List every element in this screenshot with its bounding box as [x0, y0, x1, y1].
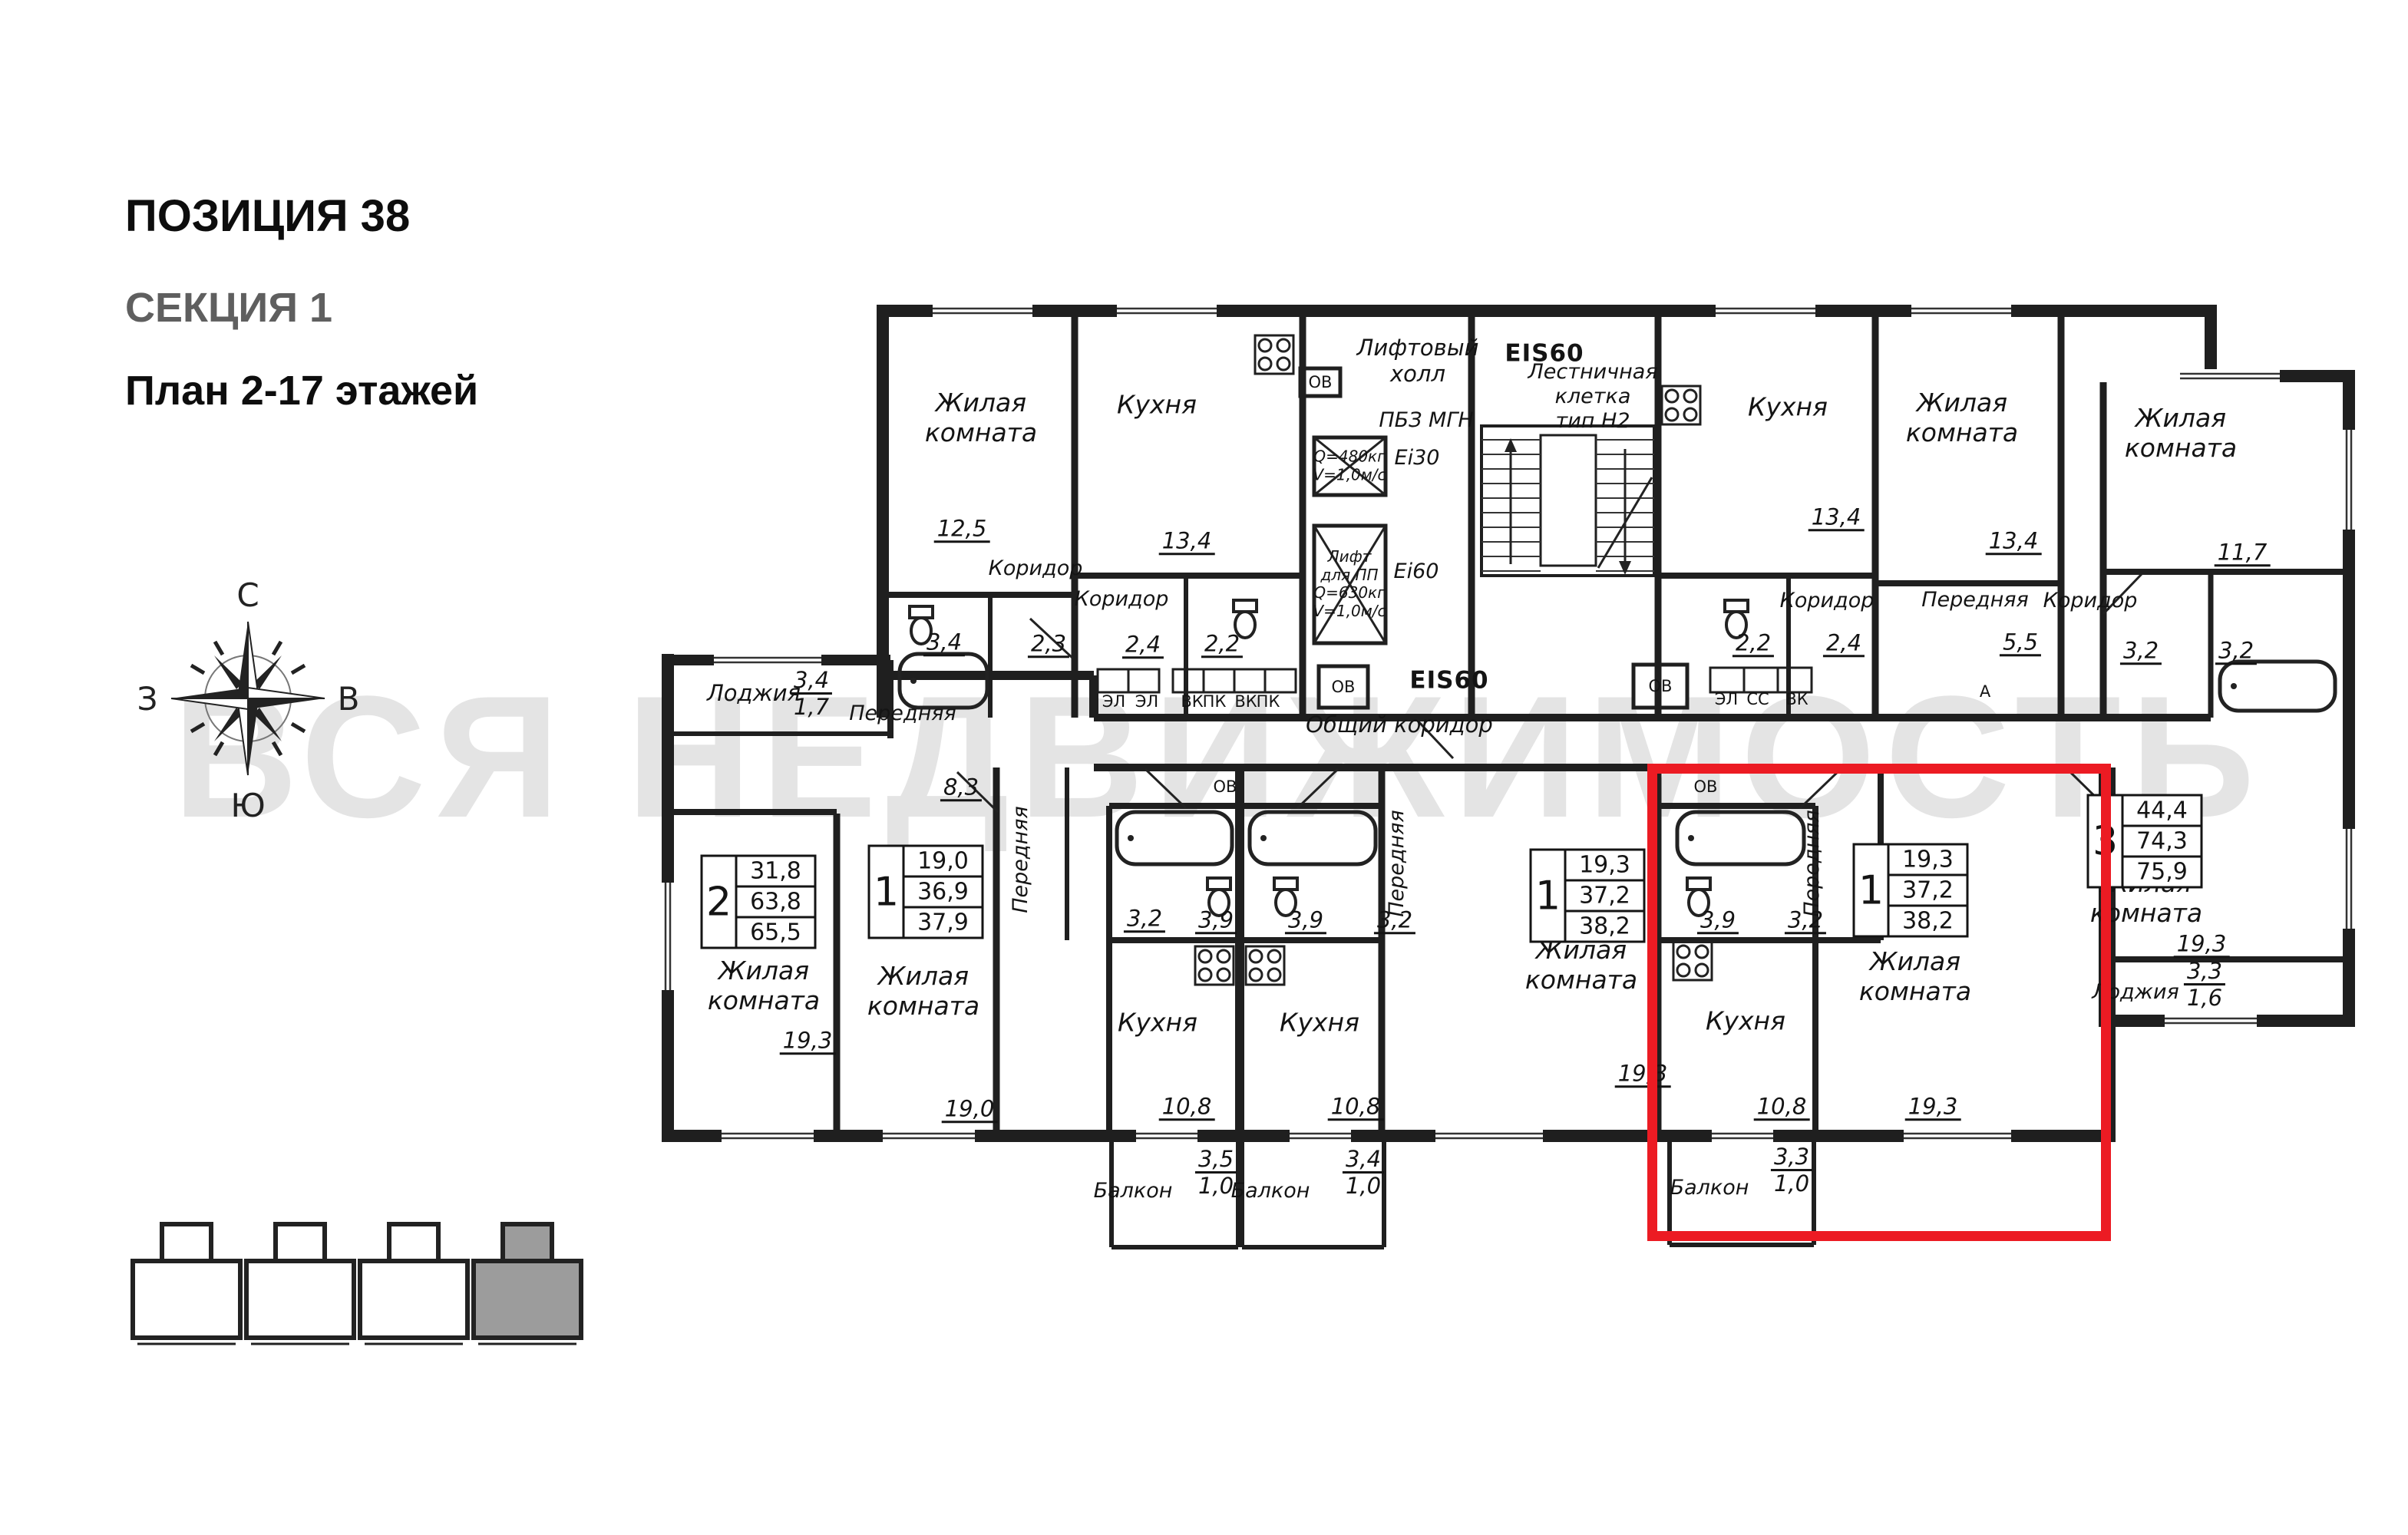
room-label: Жилая комната [867, 962, 979, 1022]
badge-areas: 31,863,865,5 [738, 857, 814, 947]
area-value: 2,4 [1122, 632, 1164, 659]
room-label: Коридор [1780, 589, 1875, 613]
utility-label: ЭЛ [1135, 692, 1158, 711]
badge-areas: 19,036,937,9 [905, 847, 982, 937]
area-label: 2,4 [1122, 632, 1164, 659]
badge-area-value: 75,9 [2124, 858, 2201, 886]
area-value: 11,7 [2215, 540, 2271, 566]
area-value: 3,9 [1195, 907, 1237, 934]
area-secondary-value: 1,6 [2184, 986, 2225, 1011]
room-label: Лоджия [707, 680, 801, 706]
area-secondary-value: 1,0 [1343, 1174, 1384, 1199]
utility-label: ВК [1181, 692, 1203, 711]
area-label: 13,4 [1159, 528, 1215, 555]
utility-label: ВК [1234, 692, 1257, 711]
room-label: Кухня [1118, 1008, 1197, 1038]
area-label: 2,2 [1733, 630, 1774, 657]
utility-label: ОВ [1332, 678, 1356, 696]
room-label: Жилая комната [708, 956, 820, 1016]
area-label: 3,4 [923, 629, 965, 656]
area-secondary-value: 1,0 [1195, 1174, 1237, 1199]
apartment-badge: 231,863,865,5 [701, 855, 817, 949]
room-label: Кухня [1280, 1008, 1359, 1038]
utility-label: ПК [1257, 692, 1280, 711]
room-label: Передняя [1385, 810, 1409, 916]
apartment-badge: 119,036,937,9 [868, 845, 984, 939]
utility-label: СС [1746, 690, 1769, 708]
room-label: Общий коридор [1306, 711, 1493, 738]
area-label: 3,41,7 [791, 668, 832, 720]
area-label: 3,2 [1124, 906, 1165, 933]
badge-room-count: 1 [870, 847, 905, 937]
plan-labels-layer: Жилая комнатаКоридорКухняКоридорЛифтовый… [0, 0, 2408, 1535]
area-label: 10,8 [1328, 1094, 1384, 1121]
area-label: 13,4 [1808, 504, 1865, 531]
room-label: Q=480кг V=1,0м/с [1313, 447, 1386, 484]
area-value: 2,3 [1028, 631, 1069, 658]
room-label: Балкон [1231, 1179, 1310, 1203]
badge-area-value: 38,2 [1567, 913, 1643, 941]
utility-label: ЭЛ [1102, 692, 1125, 711]
area-secondary-value: 1,7 [791, 695, 832, 720]
badge-area-value: 19,3 [1567, 851, 1643, 882]
area-label: 19,3 [2174, 931, 2230, 958]
area-value: 3,4 [791, 668, 832, 695]
utility-label: ПК [1203, 692, 1227, 711]
room-label: Жилая комната [1525, 936, 1637, 995]
room-label: Балкон [1094, 1179, 1173, 1203]
area-value: 13,4 [1986, 528, 2042, 555]
area-value: 3,5 [1195, 1147, 1237, 1174]
area-value: 2,2 [1201, 631, 1243, 658]
area-value: 3,9 [1285, 907, 1326, 934]
room-label: Ei60 [1394, 560, 1439, 584]
area-value: 3,4 [923, 629, 965, 656]
area-label: 3,51,0 [1195, 1147, 1237, 1199]
badge-areas: 19,337,238,2 [1567, 851, 1643, 941]
room-label: Лифт для ПП Q=630кг V=1,0м/с [1313, 548, 1386, 620]
area-value: 13,4 [1159, 528, 1215, 555]
room-label: Коридор [989, 556, 1083, 581]
badge-area-value: 63,8 [738, 888, 814, 919]
area-value: 3,3 [2184, 959, 2225, 985]
area-value: 3,2 [2120, 638, 2162, 665]
area-value: 13,4 [1808, 504, 1865, 531]
area-value: 2,4 [1823, 630, 1865, 657]
badge-area-value: 37,2 [1567, 882, 1643, 913]
area-label: 13,4 [1986, 528, 2042, 555]
area-value: 8,3 [940, 774, 982, 801]
utility-label: ВК [1785, 690, 1808, 708]
area-value: 10,8 [1159, 1094, 1215, 1121]
badge-room-count: 1 [1532, 851, 1567, 941]
badge-area-value: 36,9 [905, 878, 982, 909]
room-label: ПБЗ МГН [1379, 408, 1473, 433]
area-label: 19,0 [942, 1096, 998, 1123]
area-value: 3,2 [1374, 907, 1415, 934]
highlighted-apartment-outline [1647, 764, 2111, 1241]
room-label: Жилая комната [1906, 388, 2018, 448]
badge-areas: 44,474,375,9 [2124, 797, 2201, 886]
area-label: 3,2 [2215, 638, 2257, 665]
badge-area-value: 19,0 [905, 847, 982, 878]
room-label: Передняя [849, 701, 956, 726]
area-label: 12,5 [934, 516, 990, 543]
area-value: 19,3 [2174, 931, 2230, 958]
room-label: Передняя [1921, 588, 2028, 612]
room-label: Кухня [1117, 391, 1197, 421]
floorplan-page: ПОЗИЦИЯ 38 СЕКЦИЯ 1 План 2-17 этажей ВСЯ… [0, 0, 2408, 1535]
badge-area-value: 37,9 [905, 909, 982, 937]
area-value: 3,2 [1124, 906, 1165, 933]
area-label: 3,9 [1285, 907, 1326, 934]
room-label: Лестничная клетка тип Н2 [1528, 360, 1657, 434]
area-label: 3,2 [2120, 638, 2162, 665]
apartment-badge: 119,337,238,2 [1530, 849, 1646, 943]
area-label: 10,8 [1159, 1094, 1215, 1121]
badge-area-value: 65,5 [738, 919, 814, 947]
room-label: Лифтовый холл [1357, 335, 1479, 387]
utility-label: ОВ [1214, 777, 1237, 796]
area-label: 8,3 [940, 774, 982, 801]
area-label: 3,41,0 [1343, 1147, 1384, 1199]
room-label: Передняя [1009, 806, 1033, 913]
room-label: Ei30 [1395, 446, 1440, 470]
area-label: 2,2 [1201, 631, 1243, 658]
area-label: 11,7 [2215, 540, 2271, 566]
area-value: 3,2 [2215, 638, 2257, 665]
room-label: Жилая комната [925, 388, 1037, 448]
room-label: Коридор [1075, 587, 1169, 612]
utility-label: А [1980, 682, 1990, 701]
badge-room-count: 2 [703, 857, 738, 947]
area-value: 19,0 [942, 1096, 998, 1123]
area-label: 3,2 [1374, 907, 1415, 934]
badge-area-value: 31,8 [738, 857, 814, 888]
area-label: 3,9 [1195, 907, 1237, 934]
area-value: 2,2 [1733, 630, 1774, 657]
room-label: Кухня [1748, 393, 1828, 423]
area-label: 5,5 [2000, 629, 2041, 656]
area-label: 2,3 [1028, 631, 1069, 658]
badge-area-value: 74,3 [2124, 827, 2201, 858]
area-value: 12,5 [934, 516, 990, 543]
utility-label: ОВ [1649, 677, 1673, 695]
area-label: 19,3 [780, 1028, 836, 1055]
area-value: 10,8 [1328, 1094, 1384, 1121]
utility-label: ОВ [1309, 373, 1333, 391]
badge-area-value: 44,4 [2124, 797, 2201, 827]
area-value: 19,3 [780, 1028, 836, 1055]
room-label: Жилая комната [2125, 404, 2237, 464]
area-value: 3,4 [1343, 1147, 1384, 1174]
room-label: Коридор [2043, 589, 2138, 613]
area-label: 3,31,6 [2184, 959, 2225, 1011]
room-label: EIS60 [1409, 667, 1488, 695]
area-value: 5,5 [2000, 629, 2041, 656]
area-label: 2,4 [1823, 630, 1865, 657]
utility-label: ЭЛ [1715, 690, 1738, 708]
